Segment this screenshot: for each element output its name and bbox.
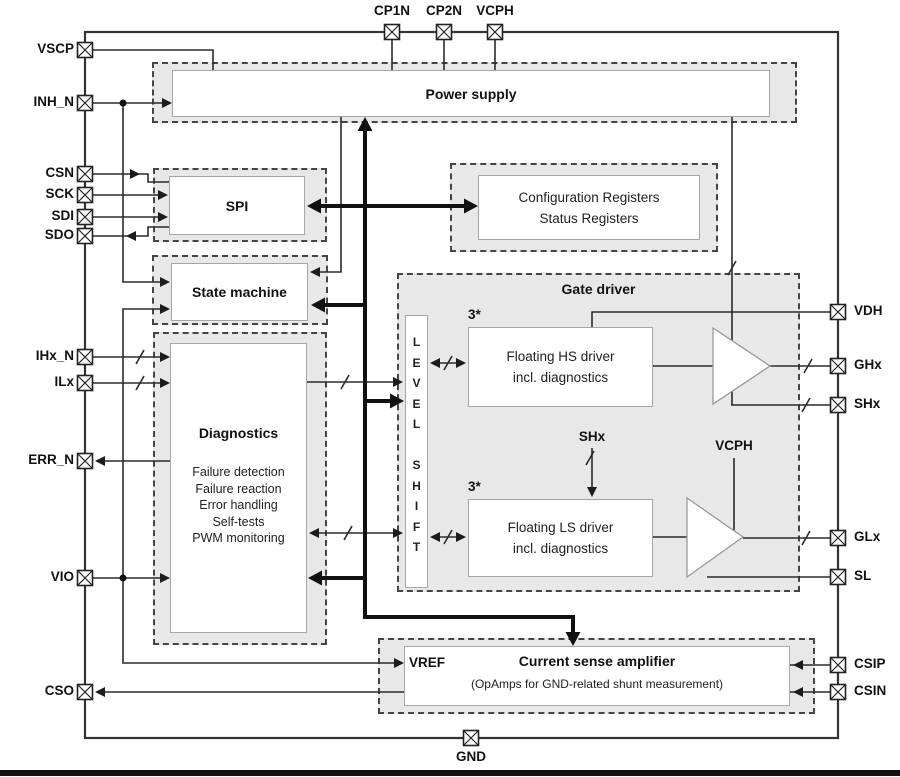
pin-label-ihx-n: IHx_N <box>14 348 74 363</box>
pin-cso-icon <box>78 685 93 700</box>
pin-csn-icon <box>78 167 93 182</box>
pin-csip-icon <box>831 658 846 673</box>
pin-ghx-icon <box>831 359 846 374</box>
pin-cp1n-icon <box>385 25 400 40</box>
level-shift-label: L E V E L S H I F T <box>405 315 428 588</box>
pin-label-cso: CSO <box>14 683 74 698</box>
hs-driver-label: Floating HS driver incl. diagnostics <box>468 327 653 407</box>
diagnostics-items: Failure detection Failure reaction Error… <box>170 464 307 547</box>
pin-label-vcph: VCPH <box>465 3 525 18</box>
hs-multiplicity-label: 3* <box>468 307 498 322</box>
vcph-internal-label: VCPH <box>706 438 762 453</box>
current-sense-subtitle: (OpAmps for GND-related shunt measuremen… <box>404 677 790 691</box>
pin-label-glx: GLx <box>854 529 880 544</box>
pin-label-sdo: SDO <box>14 227 74 242</box>
pin-sl-icon <box>831 570 846 585</box>
block-diagram: Power supply SPI Configuration Registers… <box>0 0 900 777</box>
pin-label-gnd: GND <box>441 749 501 764</box>
pin-label-cp1n: CP1N <box>362 3 422 18</box>
ls-multiplicity-label: 3* <box>468 479 498 494</box>
ls-driver-label: Floating LS driver incl. diagnostics <box>468 499 653 577</box>
pin-label-err-n: ERR_N <box>14 452 74 467</box>
pin-label-vscp: VSCP <box>14 41 74 56</box>
junction-dot <box>120 575 127 582</box>
pin-label-vdh: VDH <box>854 303 883 318</box>
pin-sdi-icon <box>78 210 93 225</box>
pin-label-ilx: ILx <box>14 374 74 389</box>
pin-label-sl: SL <box>854 568 871 583</box>
pin-label-csin: CSIN <box>854 683 886 698</box>
power-supply-label: Power supply <box>172 70 770 117</box>
pin-shx-icon <box>831 398 846 413</box>
diagnostics-title: Diagnostics <box>170 424 307 442</box>
pin-cp2n-icon <box>437 25 452 40</box>
pin-ilx-icon <box>78 376 93 391</box>
pin-vio-icon <box>78 571 93 586</box>
pin-glx-icon <box>831 531 846 546</box>
pin-sck-icon <box>78 188 93 203</box>
pin-vscp-icon <box>78 43 93 58</box>
page-footer-rule <box>0 770 900 776</box>
pin-err-n-icon <box>78 454 93 469</box>
gate-driver-label: Gate driver <box>397 280 800 298</box>
pin-label-ghx: GHx <box>854 357 882 372</box>
pin-label-sck: SCK <box>14 186 74 201</box>
pin-sdo-icon <box>78 229 93 244</box>
pin-vcph-icon <box>488 25 503 40</box>
pin-label-sdi: SDI <box>14 208 74 223</box>
pin-label-csip: CSIP <box>854 656 886 671</box>
junction-dot <box>120 100 127 107</box>
pin-label-inh-n: INH_N <box>14 94 74 109</box>
spi-label: SPI <box>169 176 305 235</box>
pin-vdh-icon <box>831 305 846 320</box>
pin-csin-icon <box>831 685 846 700</box>
pin-label-shx: SHx <box>854 396 880 411</box>
state-machine-label: State machine <box>171 263 308 321</box>
pin-gnd-icon <box>464 731 479 746</box>
pin-ihx-n-icon <box>78 350 93 365</box>
config-registers-label: Configuration Registers Status Registers <box>478 175 700 240</box>
shx-internal-label: SHx <box>572 429 612 444</box>
current-sense-title: Current sense amplifier <box>404 653 790 669</box>
pin-label-vio: VIO <box>14 569 74 584</box>
pin-label-csn: CSN <box>14 165 74 180</box>
pin-inh-n-icon <box>78 96 93 111</box>
